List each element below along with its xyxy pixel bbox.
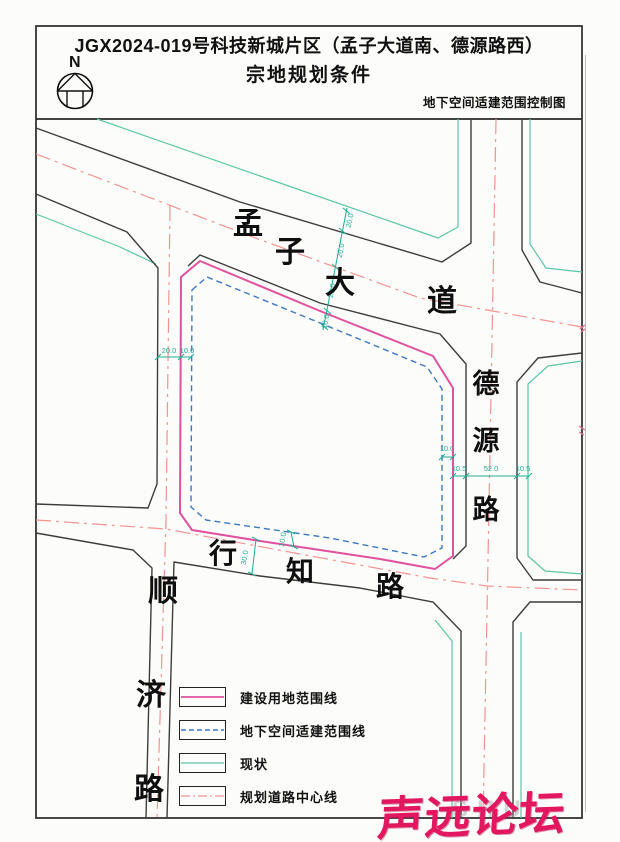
legend-label: 现状 <box>240 754 268 773</box>
legend-swatch-dashed-blue <box>179 720 226 740</box>
road-label-deyuan: 路 <box>473 494 501 525</box>
road-label-mengzi: 道 <box>427 285 457 318</box>
dim-label: 10.0 <box>180 346 195 355</box>
dim-label: 20.0 <box>335 242 347 258</box>
legend-label: 地下空间适建范围线 <box>240 721 366 740</box>
dim-label: 10.5 <box>516 464 531 473</box>
watermark: 声远论坛 <box>376 775 620 842</box>
dim-label: 20.0 <box>344 212 356 228</box>
edge-parcel-north-deyuan-west <box>188 255 466 559</box>
road-label-xingzhi: 行 <box>208 537 237 570</box>
dim-label: 20.0 <box>162 346 177 355</box>
construction-land-boundary <box>180 261 453 569</box>
existing-line-mengzi-north <box>97 119 458 238</box>
legend-label: 规划道路中心线 <box>240 787 338 806</box>
legend-item-underground-boundary: 地下空间适建范围线 <box>179 720 366 740</box>
road-label-shunji: 路 <box>134 773 165 806</box>
legend-label: 建设用地范围线 <box>240 688 338 707</box>
page-title-line2: 宗地规划条件 <box>36 60 582 87</box>
legend-swatch-solid-pink <box>179 687 226 707</box>
road-label-xingzhi: 知 <box>286 555 314 588</box>
road-label-deyuan: 德 <box>473 369 500 399</box>
road-label-mengzi: 子 <box>275 236 305 269</box>
centerline-shunji-lu <box>157 206 170 818</box>
dim-label: 10.0 <box>440 444 455 453</box>
road-label-mengzi: 孟 <box>233 208 263 241</box>
legend-swatch-dashdot-red <box>179 786 226 806</box>
dim-label: 52.0 <box>484 464 499 473</box>
existing-line-northeast-block <box>530 119 582 272</box>
road-label-xingzhi: 路 <box>376 571 405 603</box>
road-label-deyuan: 源 <box>473 426 500 456</box>
existing-line-mengzi-southwest <box>36 214 156 264</box>
dim-label: 30.0 <box>239 550 250 566</box>
edge-mengzi-south-shunji-west <box>36 194 158 508</box>
drawing-subtitle: 地下空间适建范围控制图 <box>36 92 566 111</box>
legend-item-construction-boundary: 建设用地范围线 <box>179 687 366 707</box>
road-label-mengzi: 大 <box>325 267 355 300</box>
road-label-shunji: 顺 <box>148 575 178 608</box>
page-title-line1: JGX2024-019号科技新城片区（孟子大道南、德源路西） <box>36 32 582 58</box>
road-label-shunji: 济 <box>136 678 167 712</box>
edge-deyuan-east-top <box>522 119 582 293</box>
dim-label: 10.5 <box>452 464 467 473</box>
plan-sheet: N <box>0 0 620 842</box>
legend: 建设用地范围线 地下空间适建范围线 现状 规划道路中心线 <box>179 687 366 821</box>
existing-line-southeast-block <box>528 361 582 574</box>
underground-space-boundary <box>191 277 442 557</box>
parcel-boundaries <box>180 261 453 569</box>
legend-item-existing-status: 现状 <box>179 753 366 773</box>
legend-item-road-centerline: 规划道路中心线 <box>179 786 366 806</box>
legend-swatch-solid-teal <box>179 753 226 773</box>
centerline-mengzi-dadao <box>36 154 582 327</box>
